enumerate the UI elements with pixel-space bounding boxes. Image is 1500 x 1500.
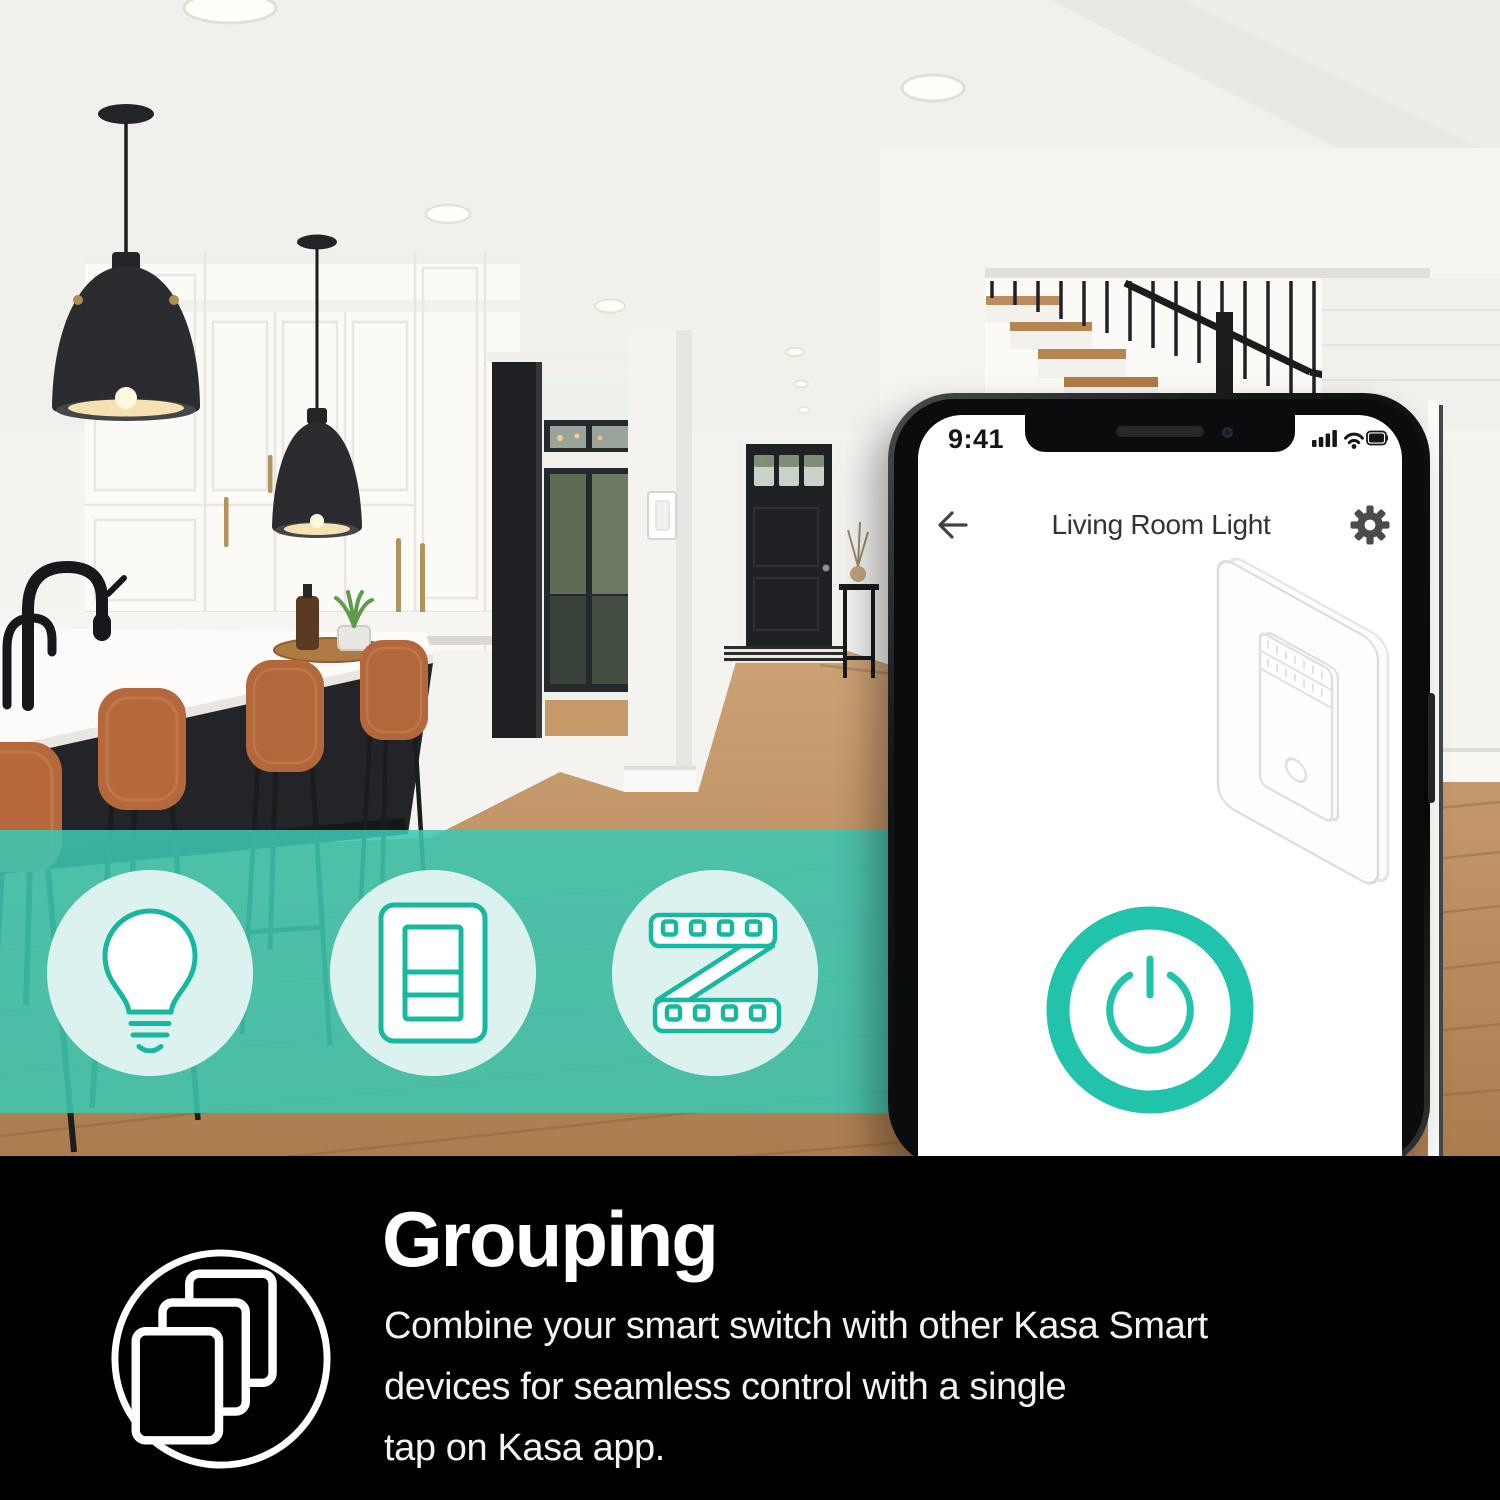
footer: Grouping Combine your smart switch with … (0, 1156, 1500, 1500)
settings-button[interactable] (1350, 505, 1390, 545)
back-button[interactable] (932, 507, 972, 543)
front-camera (1222, 427, 1233, 438)
signal-icon (1312, 430, 1337, 447)
feature-bulb-badge (47, 870, 253, 1076)
wall-light-switch (648, 492, 676, 539)
footer-body-line: tap on Kasa app. (384, 1418, 1208, 1479)
smart-switch-illustration (1218, 555, 1396, 905)
footer-body-line: Combine your smart switch with other Kas… (384, 1296, 1208, 1357)
feature-switch-badge (330, 870, 536, 1076)
screen-title: Living Room Light (972, 509, 1350, 541)
led-strip-icon (635, 898, 795, 1048)
column (624, 330, 696, 792)
smart-switch-icon (357, 892, 509, 1054)
status-icons (1310, 427, 1388, 451)
smartphone-mockup: 9:41 (888, 393, 1430, 1170)
phone-side-button (1428, 693, 1435, 803)
phone-screen: 9:41 (918, 415, 1402, 1170)
feature-led-strip-badge (612, 870, 818, 1076)
wifi-icon (1346, 434, 1363, 442)
speaker-slot (1116, 426, 1204, 437)
app-nav-bar: Living Room Light (918, 501, 1402, 549)
footer-body-line: devices for seamless control with a sing… (384, 1357, 1208, 1418)
patio-doorway (486, 352, 646, 738)
status-time: 9:41 (948, 424, 1004, 455)
battery-icon (1367, 432, 1388, 445)
marketing-image: 9:41 (0, 0, 1500, 1500)
power-button[interactable] (1040, 900, 1260, 1120)
smart-bulb-icon (77, 893, 223, 1053)
grouping-icon (106, 1244, 336, 1474)
notch (1025, 415, 1295, 452)
footer-body: Combine your smart switch with other Kas… (384, 1296, 1208, 1479)
footer-heading: Grouping (382, 1200, 717, 1278)
